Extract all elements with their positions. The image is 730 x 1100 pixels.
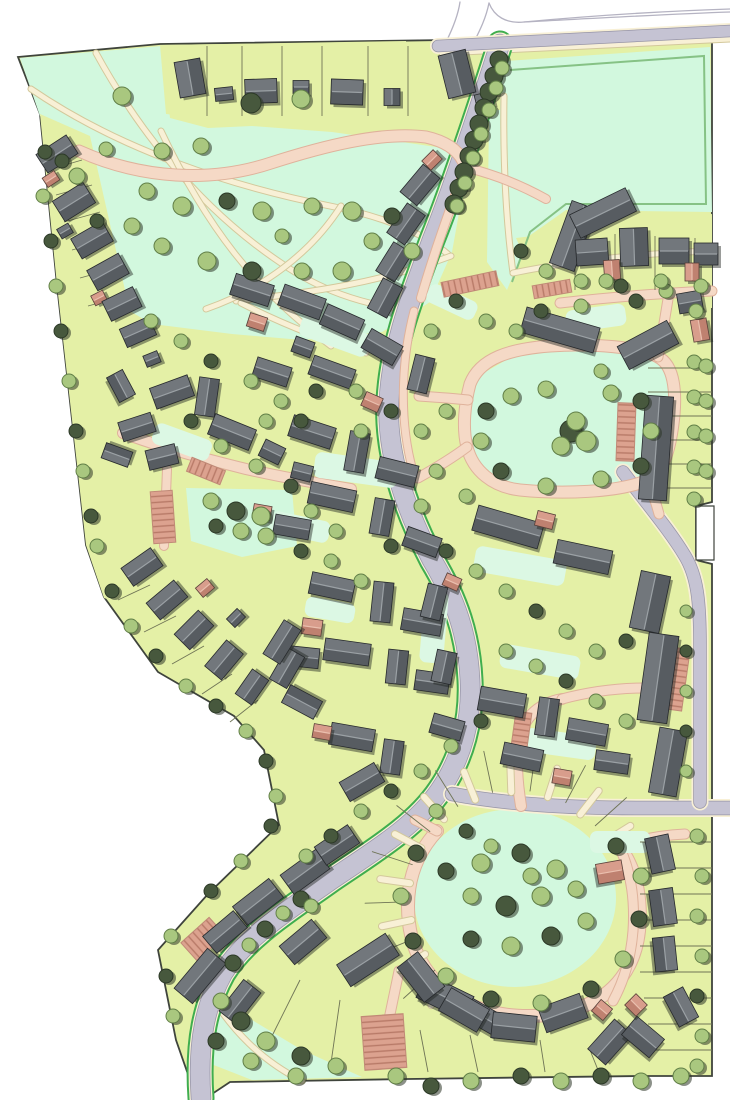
tree-dark (514, 244, 528, 258)
tree (463, 888, 479, 904)
tree (76, 464, 90, 478)
tree-dark (209, 699, 223, 713)
tree (680, 605, 692, 617)
building-footprint (551, 768, 575, 789)
tree (253, 202, 271, 220)
tree (239, 724, 253, 738)
tree-dark (680, 645, 692, 657)
building-footprint (490, 1012, 540, 1046)
tree-dark (69, 424, 83, 438)
tree (489, 81, 503, 95)
tree-dark (384, 208, 400, 224)
tree (458, 176, 472, 190)
tree (144, 314, 158, 328)
tree (288, 1068, 304, 1084)
tree-dark (408, 845, 424, 861)
tree (599, 274, 613, 288)
tree (258, 528, 274, 544)
tree-dark (225, 955, 241, 971)
building-footprint (385, 649, 412, 688)
tree-dark (384, 539, 398, 553)
tree-dark (219, 193, 235, 209)
tree (203, 493, 219, 509)
building-footprint (649, 936, 678, 975)
tree-dark (423, 1078, 439, 1094)
tree-dark (619, 634, 633, 648)
tree (90, 539, 104, 553)
tree-dark (680, 725, 692, 737)
tree (680, 765, 692, 777)
tree (292, 90, 310, 108)
tree (49, 279, 63, 293)
tree (243, 1053, 259, 1069)
parking-court (616, 403, 636, 462)
tree (36, 189, 50, 203)
tree (482, 103, 496, 117)
tree-dark (184, 414, 198, 428)
tree-dark (512, 844, 530, 862)
tree (680, 685, 692, 697)
building-footprint (301, 618, 326, 640)
tree (139, 183, 155, 199)
tree (173, 197, 191, 215)
tree (473, 433, 489, 449)
tree (257, 1032, 275, 1050)
tree (438, 968, 454, 984)
tree-dark (105, 584, 119, 598)
tree (472, 854, 490, 872)
tree (198, 252, 216, 270)
tree-dark (593, 1068, 609, 1084)
tree (299, 849, 313, 863)
crescent-driveway (380, 879, 410, 883)
tree (388, 1068, 404, 1084)
tree (393, 888, 409, 904)
tree (553, 1073, 569, 1089)
building-footprint (646, 888, 678, 930)
tree (499, 644, 513, 658)
tree (193, 138, 209, 154)
tree (166, 1009, 180, 1023)
site-plan-page (0, 0, 730, 1100)
tree-dark (633, 458, 649, 474)
tree (593, 471, 609, 487)
tree-dark (608, 838, 624, 854)
tree (234, 854, 248, 868)
tree (414, 764, 428, 778)
tree (699, 394, 713, 408)
tree-dark (294, 414, 308, 428)
tree (450, 199, 464, 213)
tree (269, 789, 283, 803)
tree (304, 198, 320, 214)
tree-dark (84, 509, 98, 523)
tree-dark (529, 604, 543, 618)
tree (354, 574, 368, 588)
tree-dark (209, 519, 223, 533)
tree (523, 868, 539, 884)
tree (509, 324, 523, 338)
tree-dark (384, 404, 398, 418)
tree (124, 218, 140, 234)
tree (695, 869, 709, 883)
tree (633, 1073, 649, 1089)
tree-dark (384, 784, 398, 798)
tree (574, 299, 588, 313)
tree (304, 504, 318, 518)
tree (533, 995, 549, 1011)
tree (568, 881, 584, 897)
tree (429, 464, 443, 478)
tree-dark (483, 991, 499, 1007)
tree (484, 839, 498, 853)
tree (354, 424, 368, 438)
tree (699, 464, 713, 478)
tree (619, 714, 633, 728)
tree (474, 127, 488, 141)
tree (274, 394, 288, 408)
tree-dark (243, 262, 261, 280)
tree (695, 949, 709, 963)
tree (594, 364, 608, 378)
tree (479, 314, 493, 328)
tree (349, 384, 363, 398)
tree-dark (513, 1068, 529, 1084)
tree (687, 492, 701, 506)
tree (354, 804, 368, 818)
building-footprint (384, 89, 403, 109)
tree (343, 202, 361, 220)
tree (294, 263, 310, 279)
tree-dark (690, 989, 704, 1003)
parking-court (361, 1014, 407, 1071)
tree (589, 694, 603, 708)
tree-dark (309, 384, 323, 398)
parking-court (150, 490, 176, 543)
tree (429, 804, 443, 818)
tree (233, 523, 249, 539)
tree (690, 1059, 704, 1073)
tree (252, 507, 270, 525)
tree (699, 429, 713, 443)
tree (547, 860, 565, 878)
tree (552, 437, 570, 455)
tree (503, 388, 519, 404)
tree-dark (208, 1033, 224, 1049)
tree-dark (292, 1047, 310, 1065)
tree-dark (633, 393, 649, 409)
tree-dark (542, 927, 560, 945)
tree-dark (284, 479, 298, 493)
tree-dark (629, 294, 643, 308)
tree (538, 381, 554, 397)
tree (576, 431, 596, 451)
circular-green (414, 809, 616, 987)
building-footprint (619, 227, 651, 269)
tree-dark (149, 649, 163, 663)
tree (469, 564, 483, 578)
tree-dark (493, 463, 509, 479)
tree (404, 243, 420, 259)
boundary-notch (696, 506, 714, 560)
tree (333, 262, 351, 280)
tree (276, 906, 290, 920)
tree-dark (90, 214, 104, 228)
tree (213, 993, 229, 1009)
tree-dark (232, 1012, 250, 1030)
tree-dark (438, 863, 454, 879)
tree (654, 274, 668, 288)
tree (499, 584, 513, 598)
tree-dark (463, 931, 479, 947)
offsite-road-line (489, 3, 730, 22)
tree-dark (55, 154, 69, 168)
tree-dark (583, 981, 599, 997)
tree-dark (559, 674, 573, 688)
tree (324, 554, 338, 568)
site-plan-svg (0, 0, 730, 1100)
tree-dark (54, 324, 68, 338)
tree (699, 359, 713, 373)
tree (529, 659, 543, 673)
tree (603, 385, 619, 401)
tree (459, 489, 473, 503)
tree (113, 87, 131, 105)
tree-dark (294, 544, 308, 558)
tree (444, 739, 458, 753)
tree-dark (631, 911, 647, 927)
tree (154, 143, 170, 159)
tree (174, 334, 188, 348)
tree (424, 324, 438, 338)
tree (673, 1068, 689, 1084)
tree (244, 374, 258, 388)
tree (414, 499, 428, 513)
tree-dark (474, 714, 488, 728)
tree (249, 459, 263, 473)
tree (633, 868, 649, 884)
tree (328, 1058, 344, 1074)
notch-layer (696, 506, 714, 560)
tree (214, 439, 228, 453)
tree (463, 1073, 479, 1089)
tree (690, 829, 704, 843)
tree (329, 524, 343, 538)
tree (694, 279, 708, 293)
tree-dark (449, 294, 463, 308)
tree (643, 423, 659, 439)
tree (164, 929, 178, 943)
tree (538, 478, 554, 494)
tree-dark (257, 921, 273, 937)
tree-dark (405, 933, 421, 949)
tree (304, 899, 318, 913)
tree-dark (204, 884, 218, 898)
tree-dark (324, 829, 338, 843)
tree (124, 619, 138, 633)
building-footprint (330, 79, 366, 108)
building-footprint (370, 581, 397, 626)
tree-dark (38, 145, 52, 159)
tree-dark (439, 544, 453, 558)
tree (695, 1029, 709, 1043)
tree (154, 238, 170, 254)
tree (179, 679, 193, 693)
tree (414, 424, 428, 438)
tree-dark (159, 969, 173, 983)
tree-dark (204, 354, 218, 368)
tree (439, 404, 453, 418)
tree (690, 909, 704, 923)
tree (364, 233, 380, 249)
tree (689, 304, 703, 318)
tree (259, 414, 273, 428)
tree (275, 229, 289, 243)
building-footprint (311, 724, 335, 744)
tree (466, 151, 480, 165)
tree (502, 937, 520, 955)
tree (62, 374, 76, 388)
tree-dark (44, 234, 58, 248)
tree-dark (459, 824, 473, 838)
tree (559, 624, 573, 638)
tree-dark (496, 896, 516, 916)
tree (578, 913, 594, 929)
tree (615, 951, 631, 967)
tree-dark (227, 502, 245, 520)
tree-dark (264, 819, 278, 833)
tree-dark (241, 93, 261, 113)
tree-dark (259, 754, 273, 768)
tree-dark (478, 403, 494, 419)
tree (69, 168, 85, 184)
tree-dark (534, 304, 548, 318)
offsite-road-line (446, 2, 460, 42)
tree (539, 264, 553, 278)
tree (242, 938, 256, 952)
tree (532, 887, 550, 905)
tree (495, 61, 509, 75)
tree (567, 412, 585, 430)
tree (574, 274, 588, 288)
tree (99, 142, 113, 156)
tree-dark (614, 279, 628, 293)
tree (589, 644, 603, 658)
